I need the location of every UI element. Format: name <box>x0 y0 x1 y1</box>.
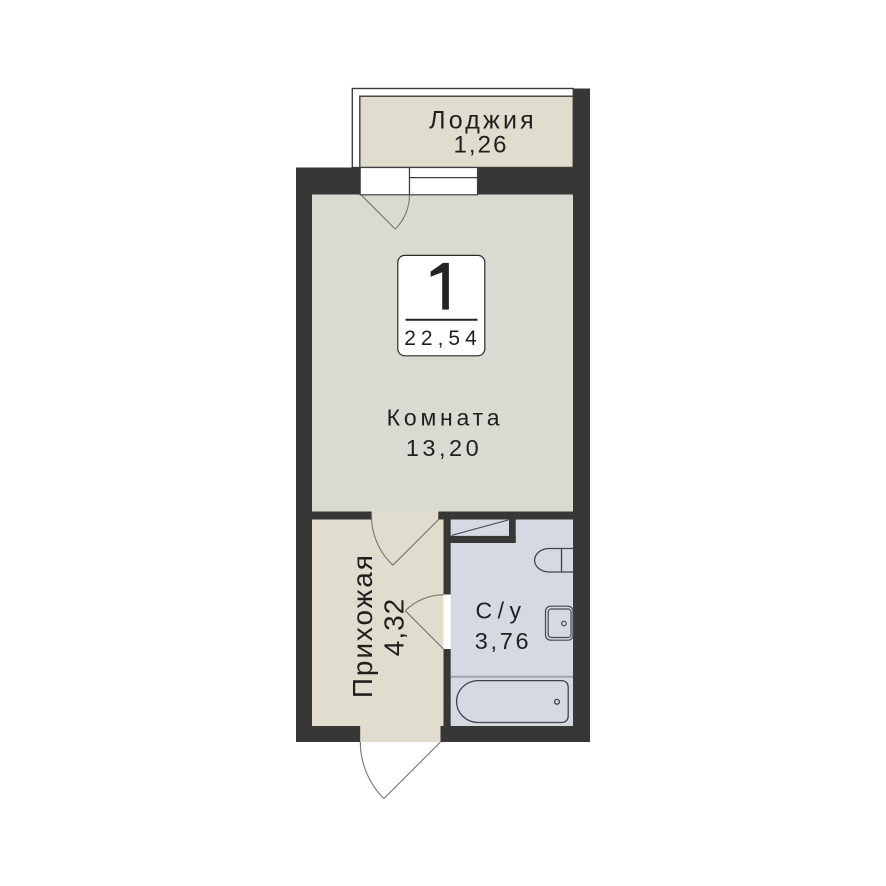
svg-text:22,54: 22,54 <box>404 327 482 350</box>
svg-text:13,20: 13,20 <box>406 435 482 461</box>
svg-text:С/у: С/у <box>476 598 527 624</box>
svg-text:Прихожая: Прихожая <box>347 553 378 698</box>
svg-text:Комната: Комната <box>387 405 504 431</box>
svg-text:Лоджия: Лоджия <box>429 106 537 134</box>
svg-text:3,76: 3,76 <box>475 628 532 654</box>
svg-text:1,26: 1,26 <box>453 132 508 159</box>
svg-text:4,32: 4,32 <box>379 598 410 657</box>
